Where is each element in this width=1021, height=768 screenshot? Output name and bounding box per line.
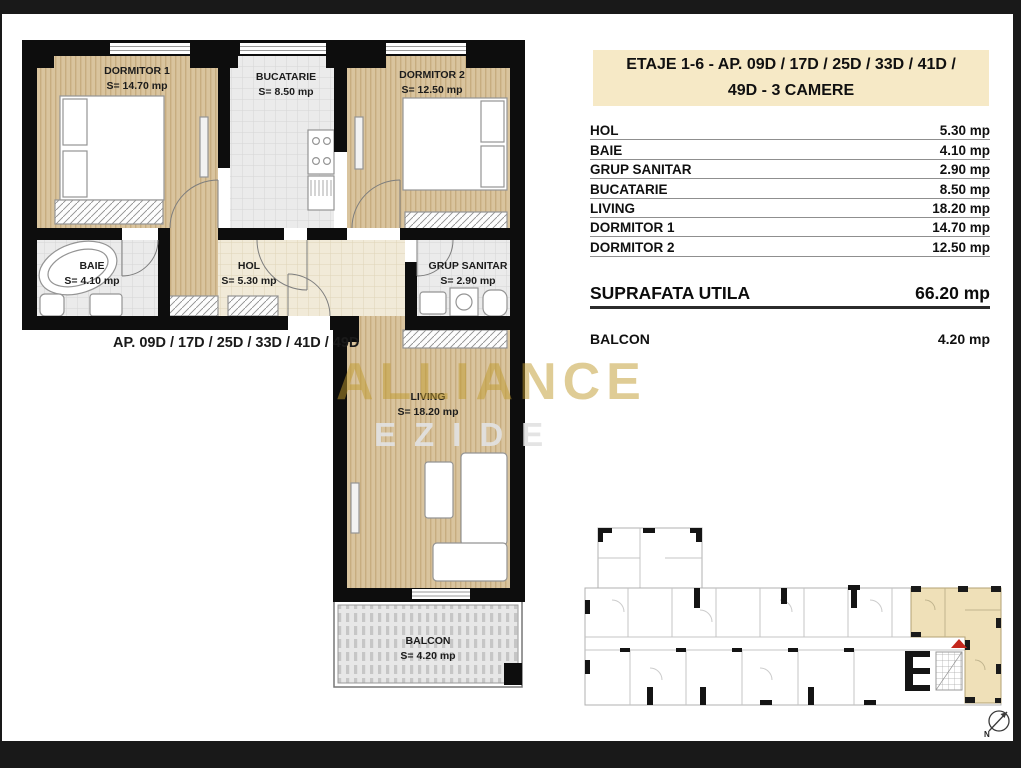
- stair-core: [905, 651, 962, 691]
- room-area: S= 14.70 mp: [104, 79, 170, 94]
- room-area: S= 2.90 mp: [429, 274, 508, 289]
- room-label-living: LIVING S= 18.20 mp: [398, 390, 459, 420]
- room-label-balcon: BALCON S= 4.20 mp: [400, 634, 455, 664]
- key-plan: N: [585, 528, 1009, 739]
- room-name: BALCON: [400, 634, 455, 649]
- room-name: LIVING: [398, 390, 459, 405]
- room-name: HOL: [221, 259, 276, 274]
- room-label-hol: HOL S= 5.30 mp: [221, 259, 276, 289]
- room-area: S= 4.20 mp: [400, 649, 455, 664]
- north-compass: N: [984, 711, 1009, 739]
- room-label-bucatarie: BUCATARIE S= 8.50 mp: [256, 70, 316, 100]
- room-name: BAIE: [64, 259, 119, 274]
- room-name: DORMITOR 2: [399, 68, 465, 83]
- room-label-grup-sanitar: GRUP SANITAR S= 2.90 mp: [429, 259, 508, 289]
- room-area: S= 8.50 mp: [256, 85, 316, 100]
- room-label-dormitor1: DORMITOR 1 S= 14.70 mp: [104, 64, 170, 94]
- room-name: BUCATARIE: [256, 70, 316, 85]
- north-label: N: [984, 730, 990, 739]
- room-label-baie: BAIE S= 4.10 mp: [64, 259, 119, 289]
- apartment-caption: AP. 09D / 17D / 25D / 33D / 41D / 49D: [113, 335, 359, 351]
- room-name: GRUP SANITAR: [429, 259, 508, 274]
- room-name: DORMITOR 1: [104, 64, 170, 79]
- room-area: S= 18.20 mp: [398, 405, 459, 420]
- room-area: S= 5.30 mp: [221, 274, 276, 289]
- room-area: S= 4.10 mp: [64, 274, 119, 289]
- room-label-dormitor2: DORMITOR 2 S= 12.50 mp: [399, 68, 465, 98]
- floor-plan-drawing: N: [0, 0, 1021, 768]
- room-area: S= 12.50 mp: [399, 83, 465, 98]
- page: N DORMITOR 1 S= 14.70 mp BUCATARIE S= 8.…: [0, 0, 1021, 768]
